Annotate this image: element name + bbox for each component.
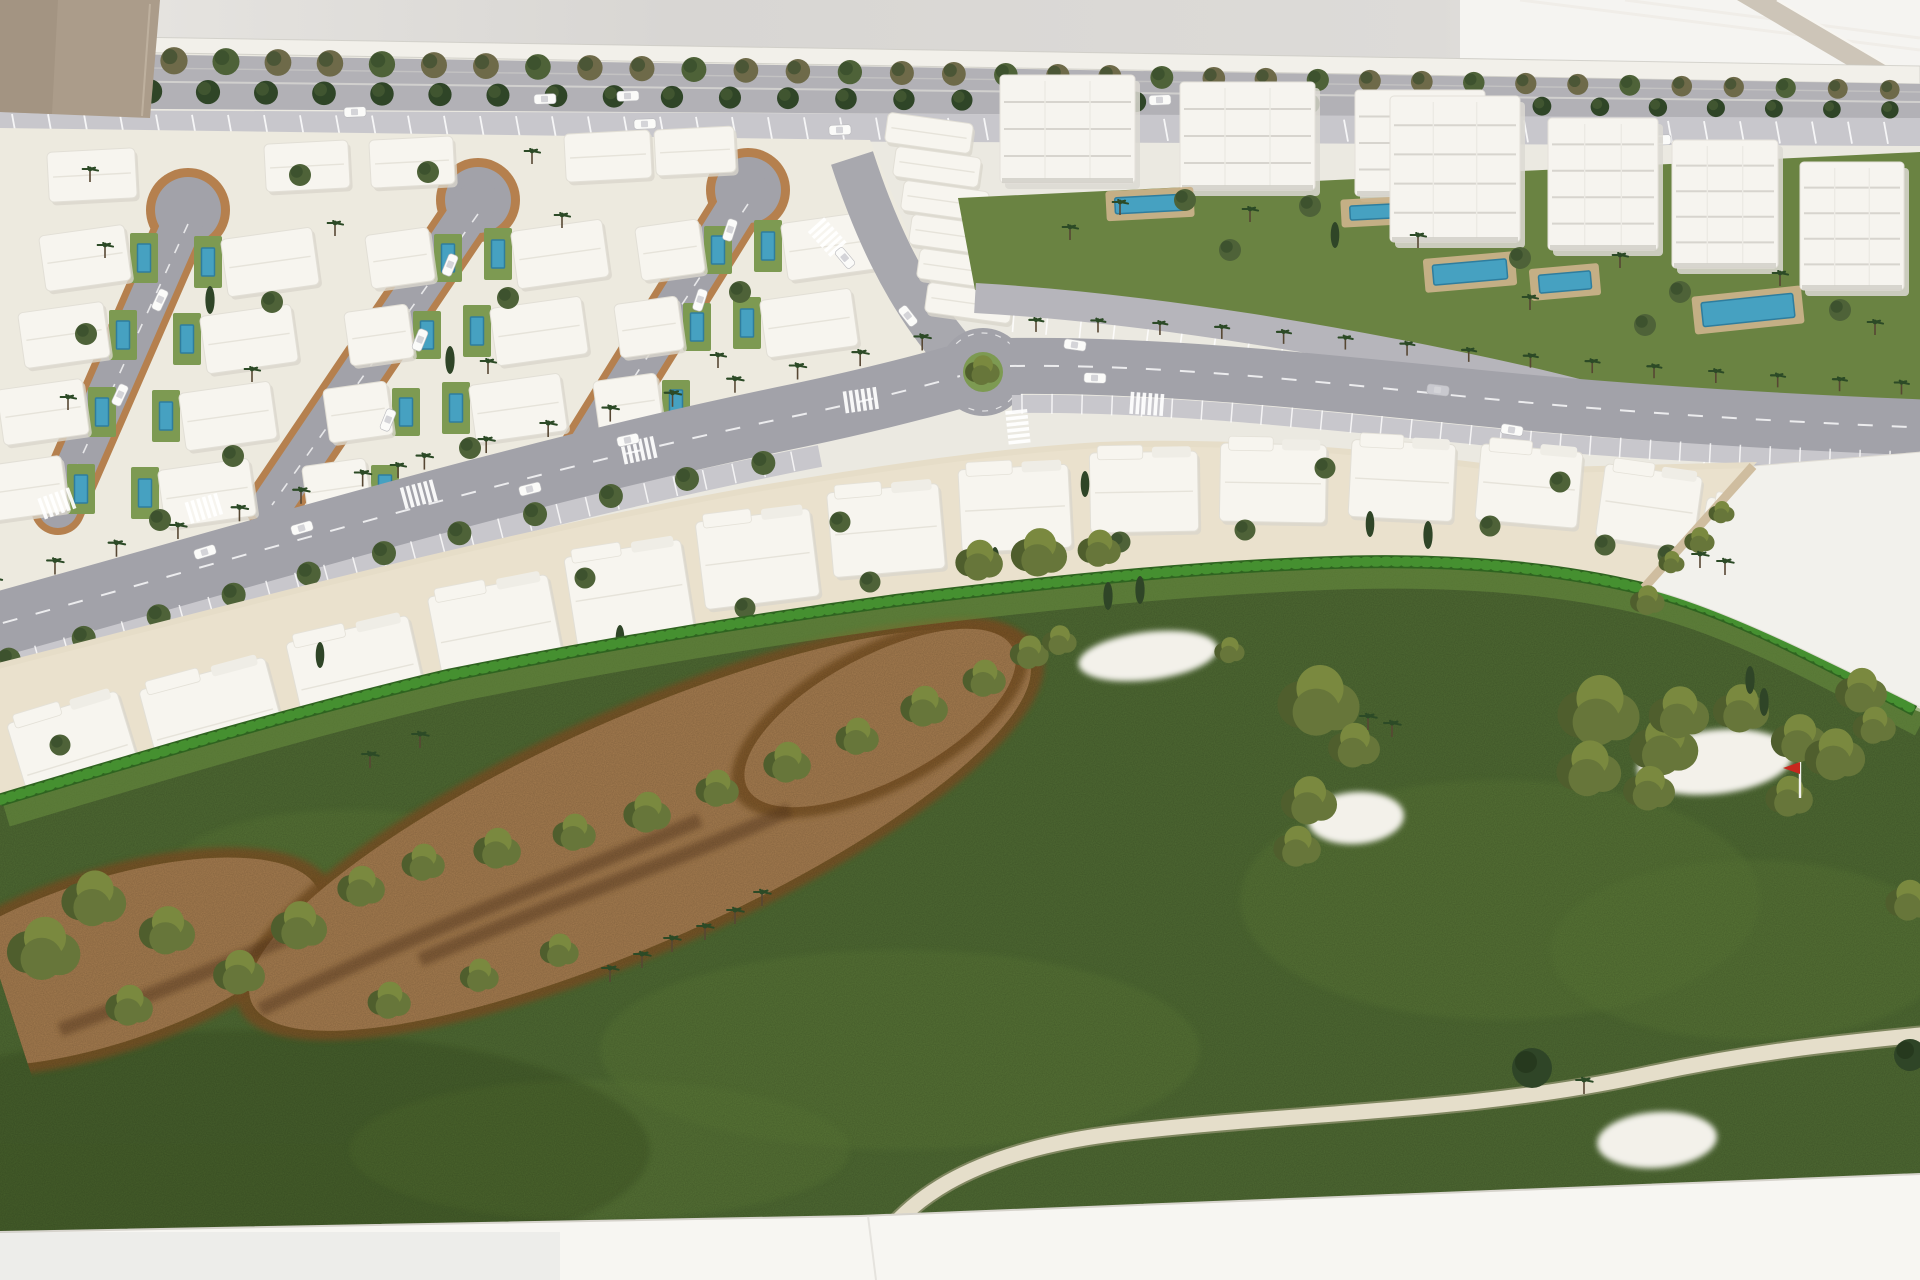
foreground-object	[0, 0, 160, 118]
screenshot-root	[0, 0, 1920, 1280]
architectural-model-photo	[0, 0, 1920, 1280]
